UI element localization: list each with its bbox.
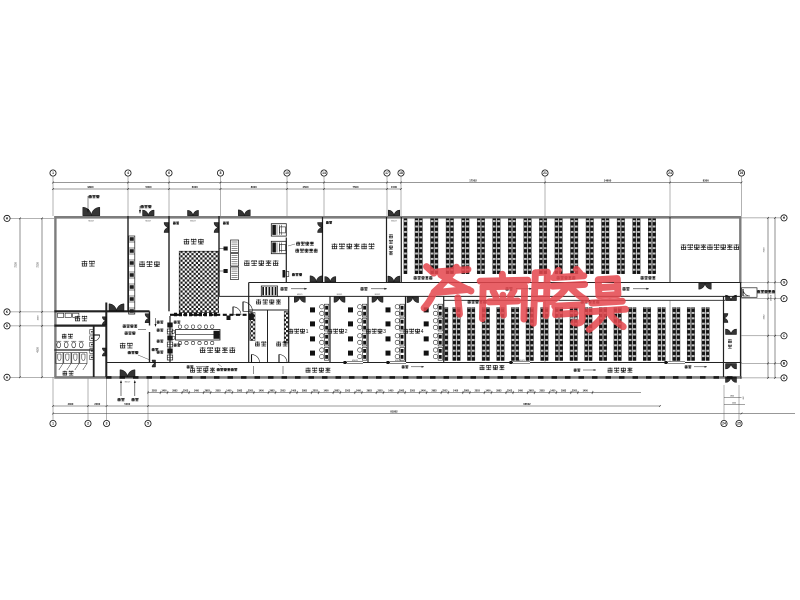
- svg-text:M1021: M1021: [352, 360, 359, 362]
- svg-text:18: 18: [399, 171, 403, 175]
- svg-text:G: G: [783, 281, 786, 285]
- svg-text:1400: 1400: [259, 390, 265, 393]
- svg-text:1400: 1400: [550, 390, 556, 393]
- svg-text:2000: 2000: [94, 402, 100, 406]
- svg-text:2983: 2983: [334, 391, 340, 393]
- svg-text:1: 1: [306, 329, 309, 335]
- svg-text:2: 2: [345, 329, 348, 335]
- svg-text:2983: 2983: [529, 391, 535, 393]
- svg-text:24: 24: [722, 422, 726, 426]
- svg-text:8000: 8000: [251, 185, 257, 189]
- svg-text:8: 8: [220, 171, 222, 175]
- svg-text:2983: 2983: [561, 391, 567, 393]
- svg-text:2503: 2503: [539, 391, 545, 393]
- svg-text:2503: 2503: [152, 391, 158, 393]
- svg-text:6000: 6000: [192, 185, 198, 189]
- svg-text:1400: 1400: [421, 390, 427, 393]
- svg-text:2000: 2000: [732, 402, 736, 404]
- svg-text:1400: 1400: [291, 390, 297, 393]
- svg-text:4500: 4500: [303, 185, 309, 189]
- svg-text:2983: 2983: [496, 391, 502, 393]
- svg-text:M1021: M1021: [673, 360, 680, 362]
- svg-text:68502: 68502: [523, 402, 531, 406]
- svg-text:24: 24: [668, 171, 672, 175]
- svg-text:2983: 2983: [302, 391, 308, 393]
- svg-text:2503: 2503: [248, 391, 254, 393]
- svg-text:16000: 16000: [771, 294, 773, 301]
- svg-text:M0921: M0921: [297, 294, 303, 296]
- svg-text:2503: 2503: [345, 391, 351, 393]
- svg-text:4: 4: [421, 329, 424, 335]
- svg-text:26: 26: [740, 171, 744, 175]
- svg-text:2503: 2503: [377, 391, 383, 393]
- svg-text:7500: 7500: [353, 185, 359, 189]
- svg-text:2983: 2983: [237, 391, 243, 393]
- svg-text:14600: 14600: [604, 179, 612, 183]
- svg-text:1000: 1000: [38, 315, 40, 321]
- svg-text:1500: 1500: [391, 185, 397, 189]
- svg-text:2503: 2503: [313, 391, 319, 393]
- svg-text:7200: 7200: [37, 262, 40, 268]
- svg-text:1400: 1400: [161, 390, 167, 393]
- svg-text:5000: 5000: [124, 402, 130, 406]
- svg-text:7200: 7200: [15, 262, 18, 268]
- svg-text:2: 2: [87, 422, 89, 426]
- svg-text:F: F: [783, 297, 785, 301]
- svg-text:25: 25: [737, 422, 741, 426]
- svg-text:1400: 1400: [356, 390, 362, 393]
- svg-text:2983: 2983: [431, 391, 437, 393]
- svg-text:2503: 2503: [475, 391, 481, 393]
- svg-text:3: 3: [106, 422, 108, 426]
- svg-text:21: 21: [543, 171, 547, 175]
- svg-text:17502: 17502: [469, 179, 477, 183]
- svg-text:2983: 2983: [205, 391, 211, 393]
- svg-text:2503: 2503: [507, 391, 513, 393]
- svg-text:1400: 1400: [226, 390, 232, 393]
- svg-text:10: 10: [285, 171, 289, 175]
- svg-text:2503: 2503: [442, 391, 448, 393]
- svg-text:3: 3: [383, 329, 386, 335]
- svg-text:2983: 2983: [367, 391, 373, 393]
- svg-text:3362: 3362: [764, 314, 766, 320]
- svg-text:1400: 1400: [485, 390, 491, 393]
- svg-text:2503: 2503: [183, 391, 189, 393]
- svg-text:9800: 9800: [88, 185, 94, 189]
- svg-text:1400: 1400: [453, 390, 459, 393]
- svg-text:M1021: M1021: [395, 360, 402, 362]
- svg-text:M1527: M1527: [89, 221, 95, 223]
- svg-text:2503: 2503: [410, 391, 416, 393]
- svg-text:2983: 2983: [464, 391, 470, 393]
- svg-text:1: 1: [52, 422, 54, 426]
- svg-text:M1021: M1021: [518, 360, 525, 362]
- svg-text:M0921: M0921: [375, 294, 381, 296]
- svg-text:1400: 1400: [518, 390, 524, 393]
- svg-text:M1527: M1527: [190, 221, 196, 223]
- svg-text:4300: 4300: [68, 402, 74, 406]
- svg-text:M1527: M1527: [146, 221, 152, 223]
- svg-text:8300: 8300: [703, 179, 709, 183]
- svg-text:1400: 1400: [583, 390, 589, 393]
- svg-text:M1527: M1527: [125, 382, 131, 384]
- svg-text:4: 4: [127, 171, 129, 175]
- svg-text:1800: 1800: [730, 395, 734, 397]
- svg-text:M0921: M0921: [337, 294, 343, 296]
- svg-text:6: 6: [168, 171, 170, 175]
- svg-text:2983: 2983: [172, 391, 178, 393]
- svg-text:2983: 2983: [269, 391, 275, 393]
- svg-text:2503: 2503: [572, 391, 578, 393]
- svg-text:5000: 5000: [146, 185, 152, 189]
- svg-text:1400: 1400: [388, 390, 394, 393]
- svg-text:14: 14: [322, 171, 326, 175]
- svg-text:2983: 2983: [399, 391, 405, 393]
- svg-text:5: 5: [147, 422, 149, 426]
- svg-text:842: 842: [743, 397, 745, 400]
- svg-text:1400: 1400: [194, 390, 200, 393]
- svg-text:2503: 2503: [280, 391, 286, 393]
- svg-text:17: 17: [385, 171, 389, 175]
- svg-text:1400: 1400: [323, 390, 329, 393]
- svg-text:81802: 81802: [390, 410, 398, 414]
- svg-text:1: 1: [52, 171, 54, 175]
- svg-text:4500: 4500: [37, 347, 40, 353]
- svg-text:M1527: M1527: [391, 221, 397, 223]
- svg-text:7500: 7500: [764, 247, 766, 253]
- svg-text:2503: 2503: [215, 391, 221, 393]
